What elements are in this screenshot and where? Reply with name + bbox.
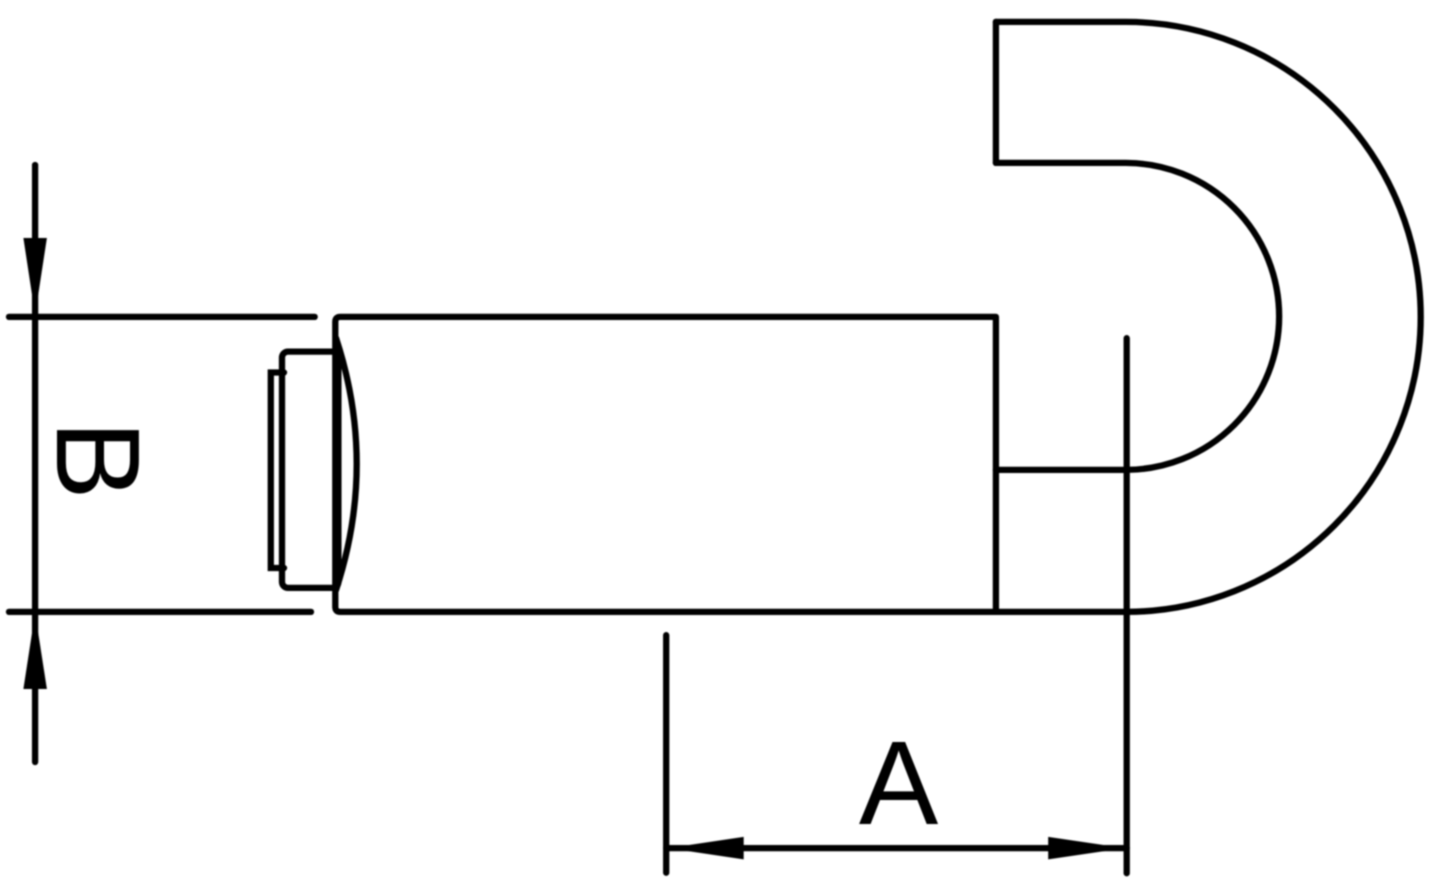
svg-text:A: A — [859, 717, 939, 850]
svg-text:B: B — [31, 420, 164, 499]
